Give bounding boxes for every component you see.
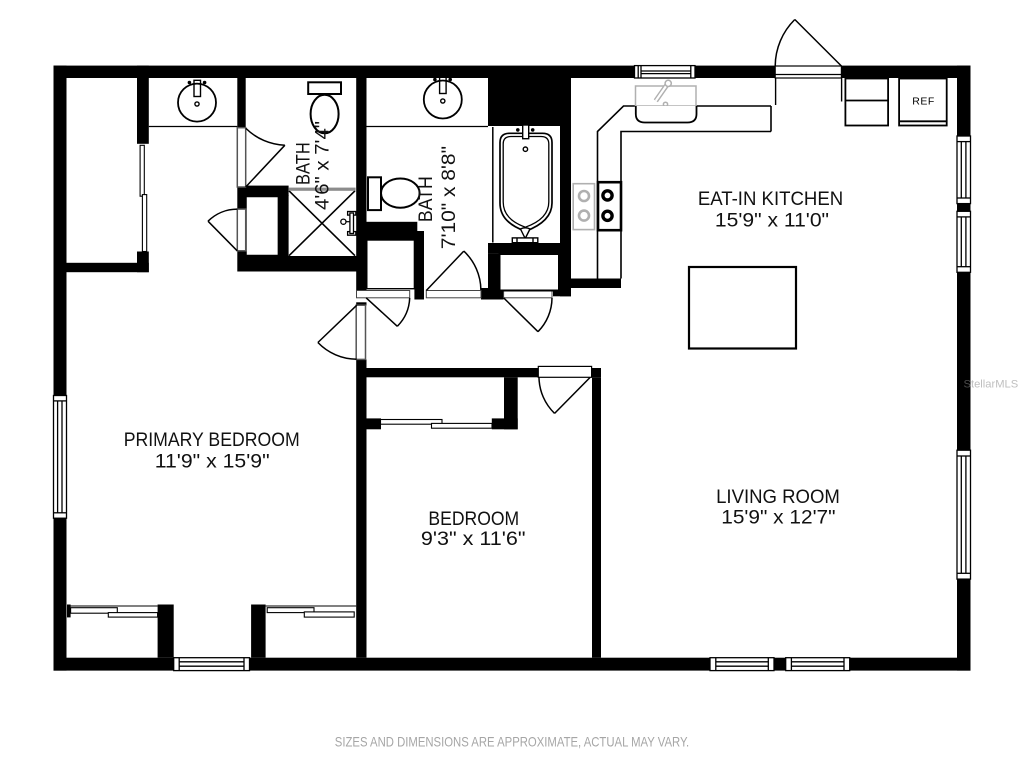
svg-text:PRIMARY BEDROOM: PRIMARY BEDROOM xyxy=(124,429,300,451)
svg-text:11'9" x 15'9": 11'9" x 15'9" xyxy=(155,451,270,473)
svg-text:SIZES AND DIMENSIONS ARE APPRO: SIZES AND DIMENSIONS ARE APPROXIMATE, AC… xyxy=(335,734,689,749)
svg-text:15'9" x 12'7": 15'9" x 12'7" xyxy=(721,506,835,528)
svg-text:7'10" x 8'8": 7'10" x 8'8" xyxy=(438,146,460,249)
svg-text:15'9" x 11'0": 15'9" x 11'0" xyxy=(715,210,829,232)
svg-text:REF: REF xyxy=(912,96,935,108)
svg-text:StellarMLS: StellarMLS xyxy=(964,378,1019,390)
svg-text:BEDROOM: BEDROOM xyxy=(428,508,519,530)
svg-text:BATH: BATH xyxy=(415,176,437,222)
svg-text:4'6" x 7'4": 4'6" x 7'4" xyxy=(312,121,334,210)
svg-text:9'3" x 11'6": 9'3" x 11'6" xyxy=(421,528,526,550)
svg-text:LIVING ROOM: LIVING ROOM xyxy=(716,486,840,508)
svg-text:EAT-IN KITCHEN: EAT-IN KITCHEN xyxy=(698,188,843,210)
